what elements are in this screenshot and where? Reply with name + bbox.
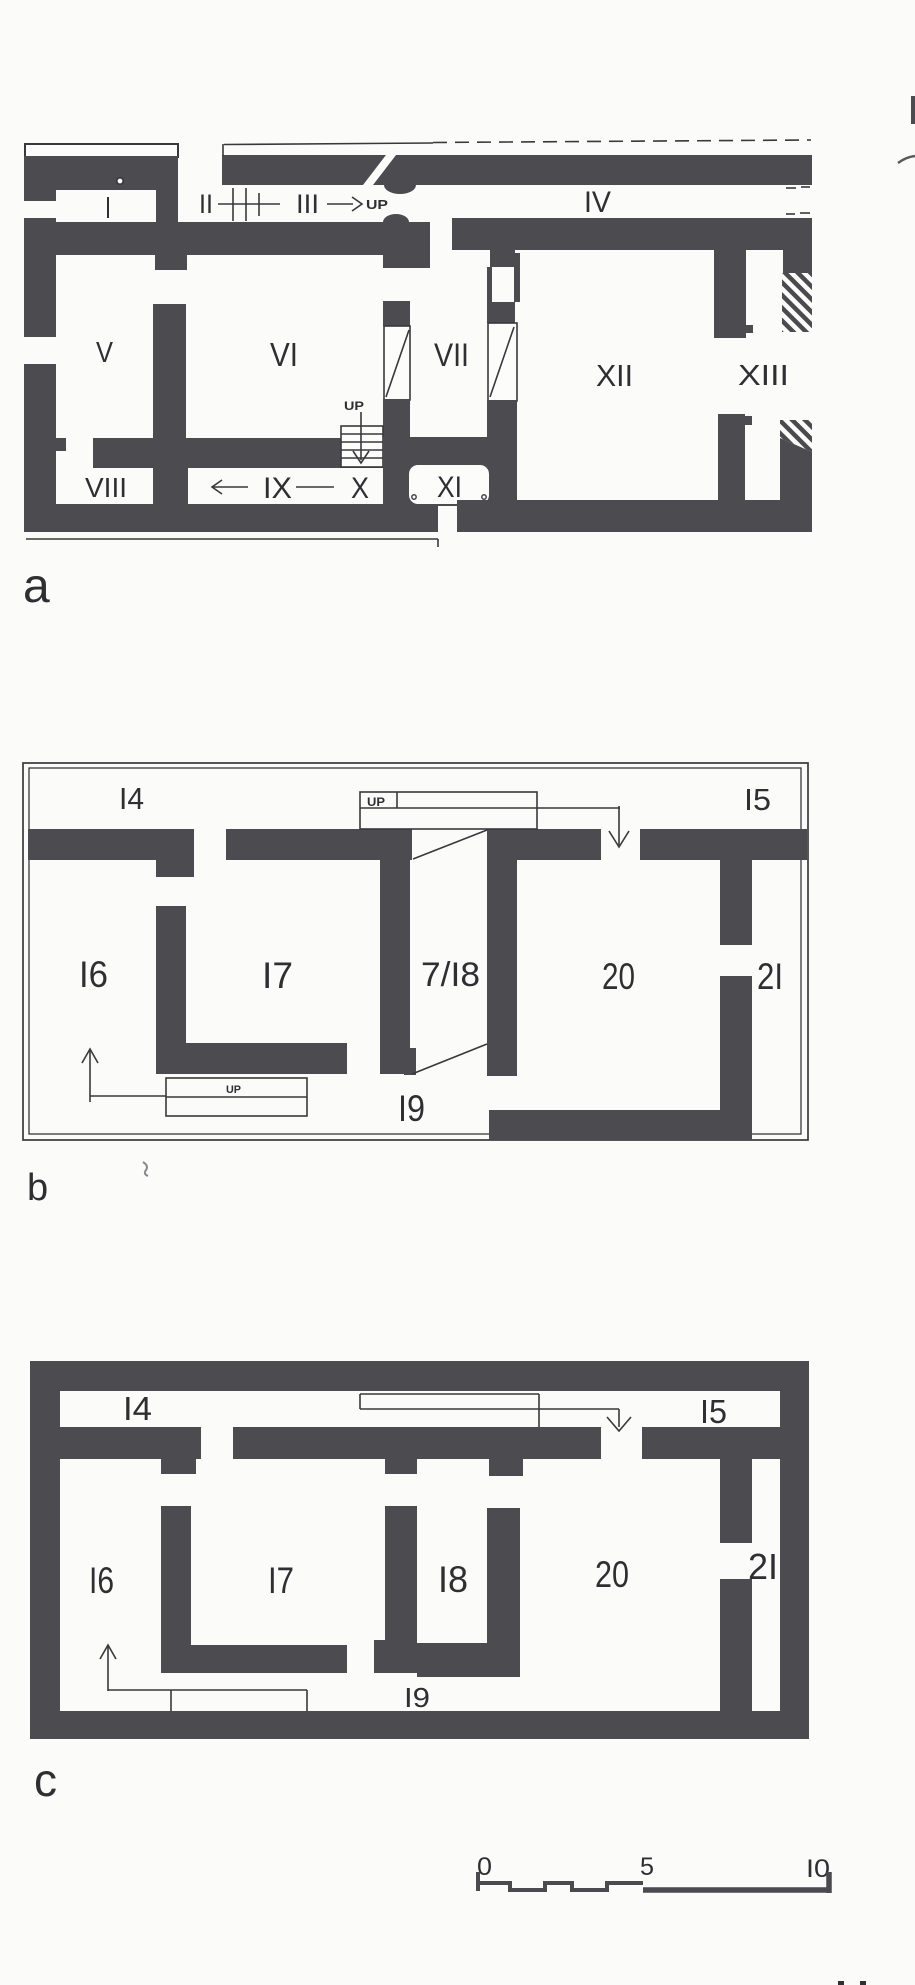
svg-text:X: X (351, 472, 369, 505)
svg-text:2I: 2I (748, 1546, 778, 1587)
svg-text:XI: XI (437, 471, 462, 504)
svg-text:I7: I7 (262, 955, 293, 996)
svg-text:I: I (105, 190, 111, 225)
svg-text:UP: UP (367, 797, 385, 809)
svg-text:VII: VII (434, 337, 469, 373)
svg-text:XIII: XIII (738, 360, 789, 392)
svg-text:V: V (96, 337, 114, 369)
svg-text:I8: I8 (438, 1559, 468, 1600)
svg-text:UP: UP (366, 197, 388, 212)
svg-text:II: II (199, 189, 213, 219)
svg-text:I4: I4 (119, 781, 144, 816)
svg-text:a: a (23, 560, 50, 613)
svg-text:UP: UP (344, 399, 364, 413)
svg-text:UP: UP (226, 1084, 241, 1096)
svg-text:I9: I9 (404, 1682, 430, 1713)
svg-text:I7: I7 (268, 1560, 294, 1601)
svg-text:c: c (34, 1754, 57, 1806)
svg-text:5: 5 (640, 1853, 654, 1881)
svg-text:2I: 2I (757, 956, 783, 997)
svg-text:20: 20 (602, 956, 635, 997)
svg-text:I5: I5 (744, 782, 771, 817)
svg-text:XII: XII (596, 358, 633, 393)
svg-text:I4: I4 (123, 1390, 152, 1427)
svg-text:I5: I5 (700, 1393, 727, 1430)
svg-text:III: III (296, 189, 319, 219)
svg-text:I9: I9 (398, 1088, 425, 1129)
svg-text:VI: VI (270, 336, 298, 373)
svg-text:I6: I6 (79, 954, 108, 995)
svg-text:20: 20 (595, 1554, 629, 1595)
svg-text:VIII: VIII (85, 472, 127, 503)
svg-text:I6: I6 (89, 1560, 114, 1601)
svg-text:IV: IV (584, 186, 611, 219)
svg-text:b: b (27, 1167, 48, 1209)
svg-text:7/I8: 7/I8 (421, 956, 480, 994)
svg-text:IX: IX (263, 472, 292, 505)
